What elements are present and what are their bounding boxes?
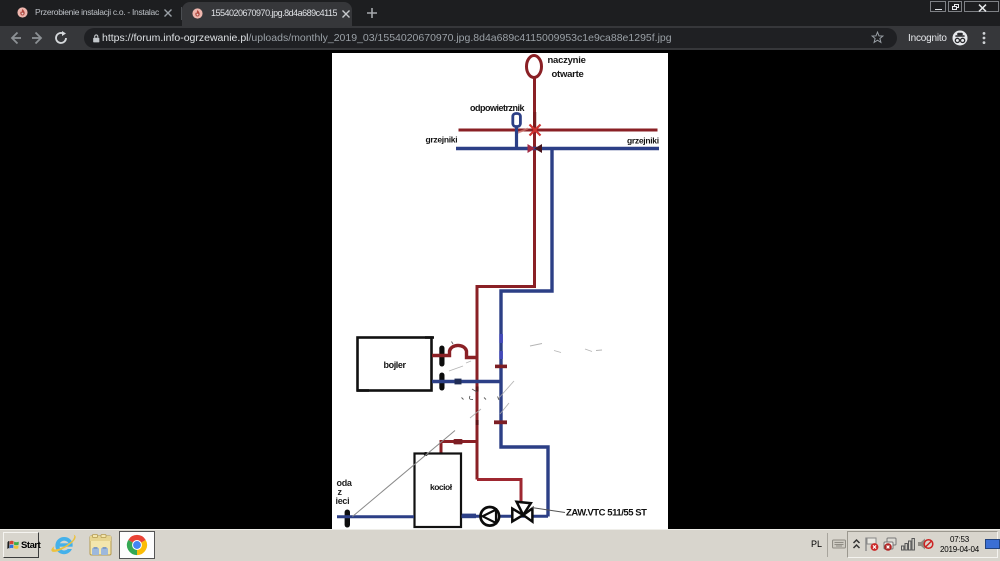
svg-text:otwarte: otwarte [552, 69, 584, 80]
svg-text:grzejniki: grzejniki [627, 136, 659, 146]
svg-text:ZAW.VTC 511/55 ST: ZAW.VTC 511/55 ST [566, 508, 647, 519]
svg-text:grzejniki: grzejniki [426, 135, 458, 145]
svg-text:kocioł: kocioł [430, 482, 453, 492]
svg-text:ieci: ieci [336, 496, 350, 506]
svg-text:odpowietrznik: odpowietrznik [470, 103, 525, 113]
svg-text:bojler: bojler [384, 360, 407, 370]
svg-text:naczynie: naczynie [548, 55, 586, 66]
